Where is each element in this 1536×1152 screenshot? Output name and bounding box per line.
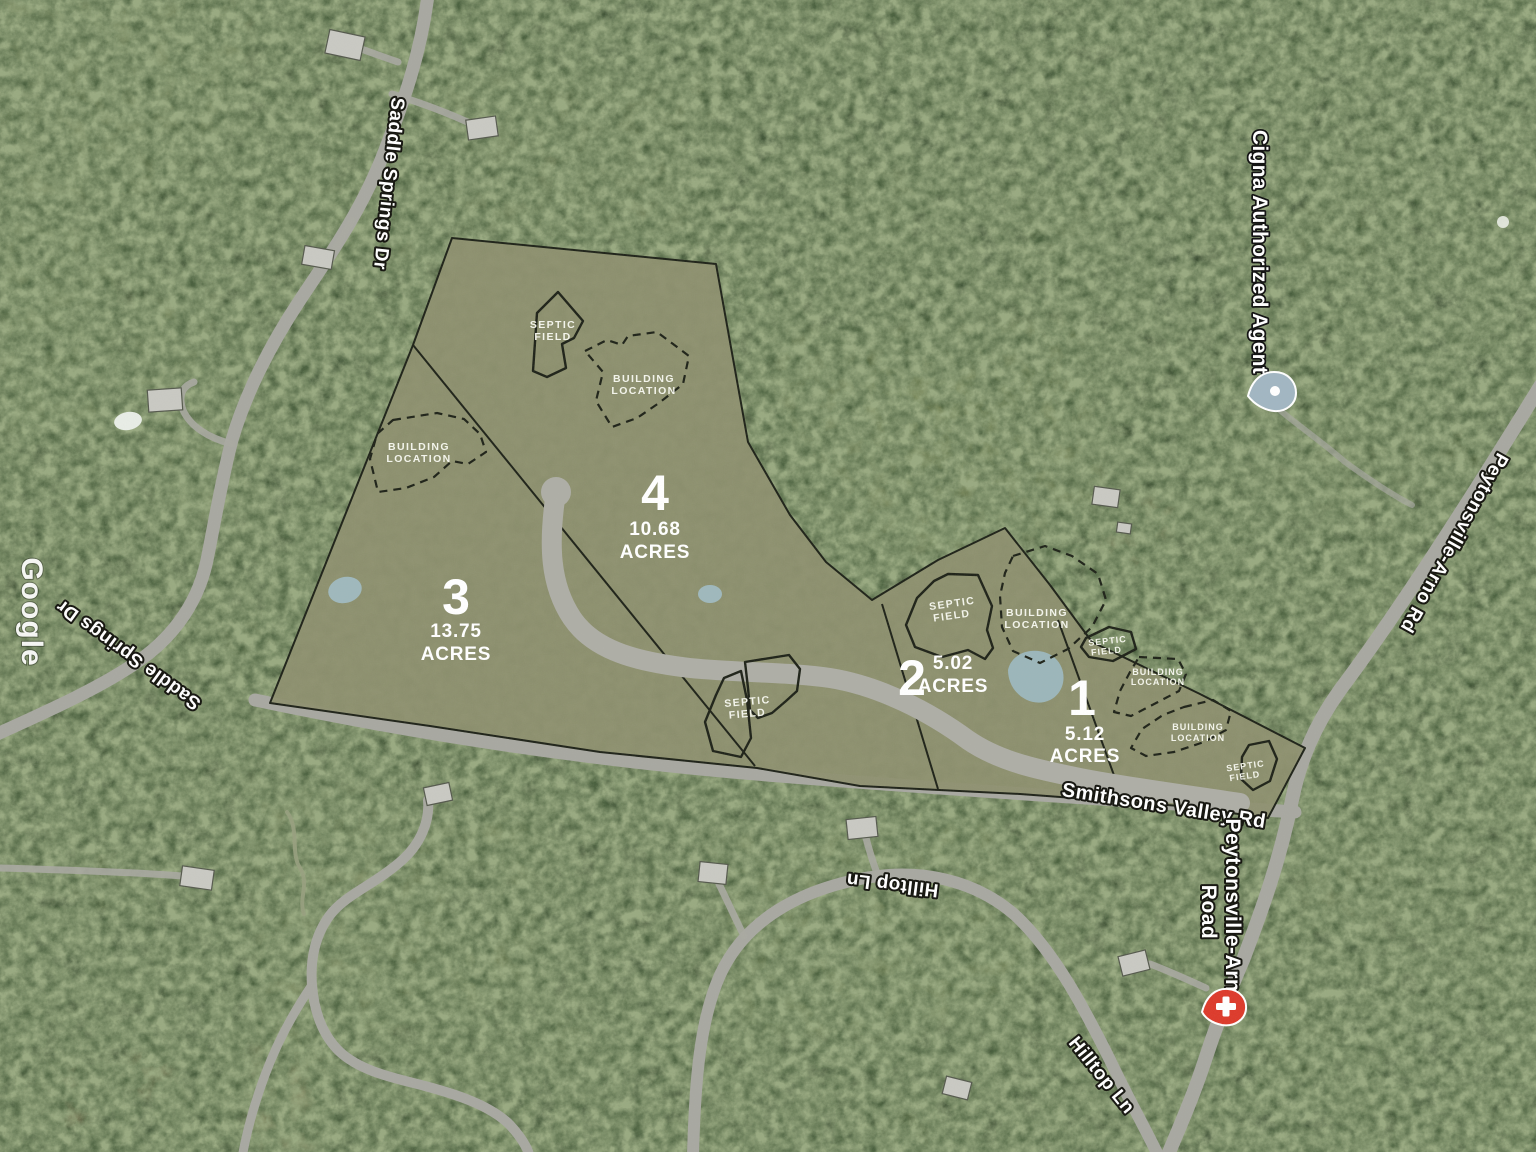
lot2-acres: 5.02 (933, 653, 973, 674)
house (698, 862, 728, 885)
building-label: LOCATION (1171, 733, 1225, 743)
shed (1116, 522, 1131, 534)
lot4-acres-unit: ACRES (620, 542, 691, 563)
lot3-number: 3 (442, 569, 470, 625)
lot3-acres: 13.75 (430, 621, 482, 642)
house (846, 816, 878, 839)
google-watermark: Google (15, 557, 48, 666)
lot2-acres-unit: ACRES (918, 676, 989, 697)
lot4-number: 4 (641, 465, 669, 521)
building-label: BUILDING (1006, 607, 1068, 619)
lot1-acres: 5.12 (1065, 724, 1105, 745)
septic-label: SEPTIC (530, 319, 576, 331)
cross-icon (1223, 997, 1230, 1017)
building-label: LOCATION (386, 453, 451, 465)
building-label: BUILDING (1132, 667, 1184, 677)
building-label: BUILDING (613, 373, 675, 385)
lot3-acres-unit: ACRES (421, 644, 492, 665)
septic-label: FIELD (534, 331, 571, 343)
pond (698, 585, 722, 603)
building-label: LOCATION (1004, 619, 1069, 631)
poi-cigna-label: Cigna Authorized Agent (1248, 130, 1271, 374)
map-canvas: SEPTIC FIELD BUILDING LOCATION BUILDING … (0, 0, 1536, 1152)
road-label-line2: Road (1197, 885, 1220, 940)
house (1092, 486, 1120, 507)
house (147, 388, 182, 412)
building-label: LOCATION (611, 385, 676, 397)
lot1-number: 1 (1068, 670, 1096, 726)
house (466, 116, 498, 140)
satellite-map: SEPTIC FIELD BUILDING LOCATION BUILDING … (0, 0, 1536, 1152)
lot1-acres-unit: ACRES (1050, 746, 1121, 767)
road-label-line1: Peytonsville-Arno (1221, 818, 1244, 1005)
building-label: BUILDING (388, 441, 450, 453)
building-label: BUILDING (1172, 722, 1224, 732)
building-label: LOCATION (1131, 677, 1185, 687)
house (180, 866, 214, 890)
clearing-dot (1497, 216, 1509, 228)
lot4-acres: 10.68 (629, 519, 681, 540)
